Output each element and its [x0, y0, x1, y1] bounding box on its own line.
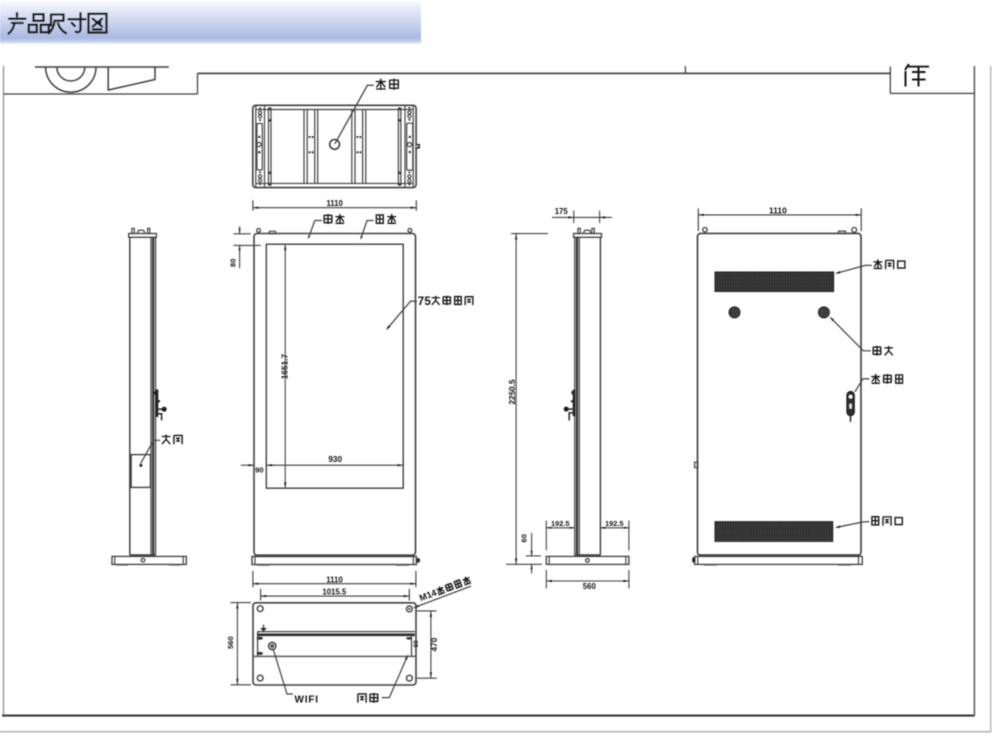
- svg-text:930: 930: [328, 455, 342, 464]
- svg-text:1651.7: 1651.7: [280, 353, 290, 379]
- svg-text:560: 560: [583, 582, 597, 591]
- svg-text:M14: M14: [418, 588, 438, 604]
- svg-text:1015.5: 1015.5: [322, 587, 347, 596]
- svg-text:75: 75: [418, 296, 432, 308]
- svg-text:80: 80: [228, 259, 237, 267]
- svg-text:2250.5: 2250.5: [508, 379, 517, 404]
- svg-text:192.5: 192.5: [551, 519, 570, 528]
- svg-text:192.5: 192.5: [605, 519, 624, 528]
- svg-text:60: 60: [519, 534, 528, 542]
- svg-text:60: 60: [413, 640, 420, 648]
- svg-text:175: 175: [555, 207, 569, 216]
- svg-text:470: 470: [429, 637, 439, 651]
- svg-text:WIFI: WIFI: [295, 694, 319, 705]
- svg-text:560: 560: [226, 636, 235, 649]
- svg-text:1110: 1110: [326, 199, 343, 208]
- svg-text:1110: 1110: [769, 205, 787, 215]
- svg-text:1110: 1110: [326, 575, 343, 584]
- svg-text:90: 90: [255, 466, 263, 475]
